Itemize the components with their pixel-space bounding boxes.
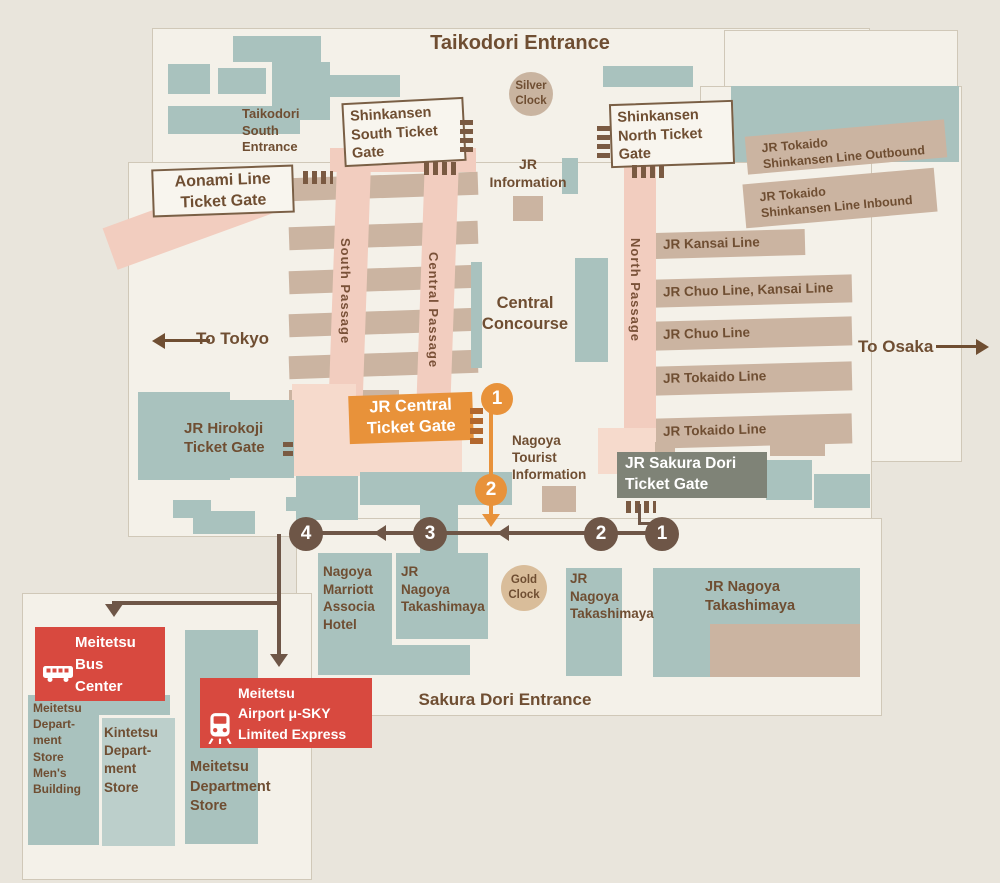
- route-marker-brown-2: 2: [584, 517, 618, 551]
- central-concourse-label: Central Concourse: [455, 293, 595, 335]
- floor-panel-top-right: [724, 30, 958, 88]
- taikodori-south-entrance-label: Taikodori South Entrance: [242, 106, 332, 156]
- turnstile-icon: [632, 165, 666, 178]
- passage-central-label: Central Passage: [426, 252, 441, 402]
- turnstile-icon: [460, 120, 473, 156]
- jr-sakura-dori-gate-box: JR Sakura Dori Ticket Gate: [617, 452, 767, 498]
- turnstile-icon: [424, 162, 458, 175]
- train-icon: [208, 694, 232, 749]
- meitetsu-mens-label: Meitetsu Depart- ment Store Men's Buildi…: [33, 700, 103, 797]
- meitetsu-bus-center-label: Meitetsu Bus Center: [75, 632, 165, 697]
- to-osaka-arrowhead-icon: [976, 339, 989, 355]
- passage-south-label: South Passage: [338, 238, 353, 388]
- turnstile-icon: [626, 501, 656, 513]
- shinkansen-north-gate-box: Shinkansen North Ticket Gate: [609, 100, 735, 168]
- marriott-label: Nagoya Marriott Associa Hotel: [323, 563, 403, 633]
- building-block: [168, 64, 210, 94]
- route-marker-orange-1: 1: [481, 383, 513, 415]
- passage-north-label: North Passage: [628, 238, 643, 388]
- route-marker-brown-1: 1: [645, 517, 679, 551]
- shinkansen-south-gate-box: Shinkansen South Ticket Gate: [341, 97, 466, 167]
- building-block: [233, 36, 321, 62]
- building-block: [218, 68, 266, 94]
- building-block: [193, 511, 255, 534]
- turnstile-icon: [470, 408, 483, 446]
- route-arrow-left-icon: [374, 525, 386, 541]
- bus-icon: [43, 645, 73, 688]
- route-line-drop: [277, 534, 281, 656]
- to-osaka-arrow-icon: [936, 345, 978, 348]
- takashimaya-label: JR Nagoya Takashimaya: [401, 563, 511, 616]
- route-arrow-left-icon: [497, 525, 509, 541]
- building-block: [770, 438, 825, 456]
- building-block: [603, 66, 693, 87]
- route-line-branch: [112, 601, 279, 605]
- turnstile-icon: [597, 126, 610, 162]
- route-arrow-down-icon: [270, 654, 288, 667]
- building-block: [766, 460, 812, 500]
- to-tokyo-arrow-icon: [164, 339, 210, 342]
- station-map: Silver Clock Gold Clock Taikodori Entran…: [0, 0, 1000, 883]
- building-block: [814, 474, 870, 508]
- to-tokyo-arrowhead-icon: [152, 333, 165, 349]
- route-arrow-down-icon: [105, 604, 123, 617]
- meitetsu-bus-center-box: Meitetsu Bus Center: [35, 627, 165, 701]
- building-block: [318, 645, 470, 675]
- silver-clock: Silver Clock: [509, 72, 553, 116]
- kintetsu-label: Kintetsu Depart- ment Store: [104, 724, 174, 797]
- route-marker-brown-4: 4: [289, 517, 323, 551]
- sakura-dori-entrance-label: Sakura Dori Entrance: [405, 689, 605, 711]
- takashimaya-label: JR Nagoya Takashimaya: [570, 570, 680, 623]
- takashimaya-east-annex: [710, 624, 860, 677]
- meitetsu-airport-label: Meitetsu Airport μ-SKY Limited Express: [238, 683, 370, 744]
- jr-central-gate-box: JR Central Ticket Gate: [348, 392, 474, 444]
- building-block: [323, 75, 400, 97]
- tourist-information-label: Nagoya Tourist Information: [512, 432, 622, 483]
- route-marker-brown-3: 3: [413, 517, 447, 551]
- taikodori-entrance-label: Taikodori Entrance: [395, 31, 645, 56]
- takashimaya-east-label: JR Nagoya Takashimaya: [705, 578, 835, 616]
- building-block: [542, 486, 576, 512]
- jr-information-label: JR Information: [480, 156, 576, 192]
- meitetsu-dept-label: Meitetsu Department Store: [190, 758, 305, 817]
- aonami-gate-box: Aonami Line Ticket Gate: [151, 165, 295, 218]
- meitetsu-airport-box: Meitetsu Airport μ-SKY Limited Express: [200, 678, 372, 748]
- route-marker-orange-2: 2: [475, 474, 507, 506]
- building-block: [286, 497, 310, 511]
- building-block: [513, 196, 543, 221]
- to-osaka-label: To Osaka: [858, 336, 938, 358]
- turnstile-icon: [283, 442, 293, 460]
- turnstile-icon: [303, 171, 333, 184]
